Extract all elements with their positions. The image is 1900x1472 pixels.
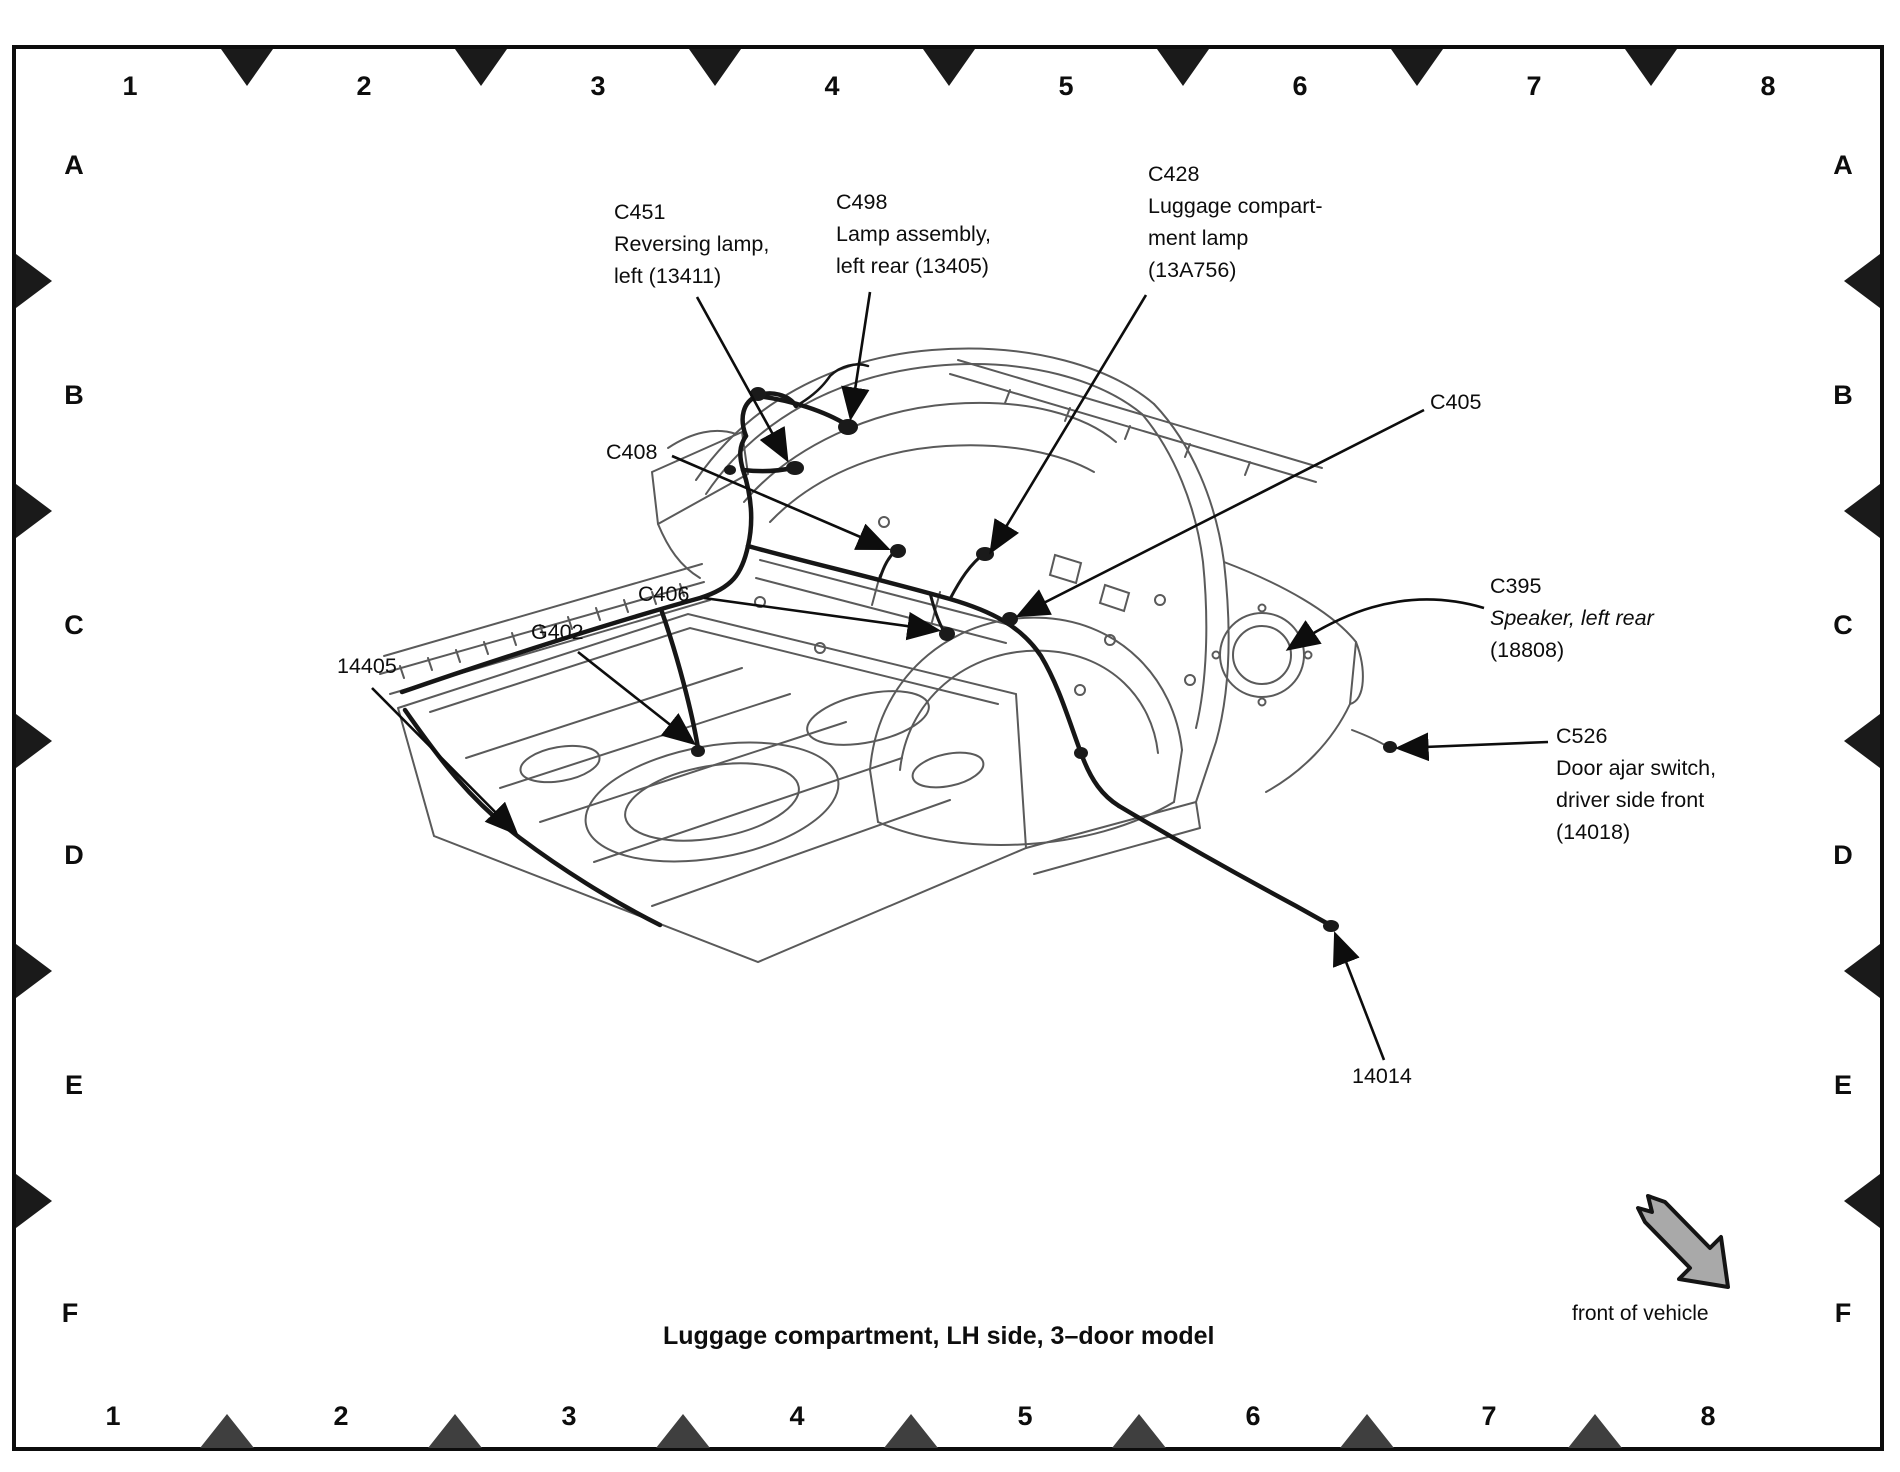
leader-c395 <box>1290 599 1484 648</box>
callout-c526: C526 Door ajar switch, driver side front… <box>1556 720 1716 848</box>
callout-c395-code: C395 <box>1490 570 1654 602</box>
grid-row-right-b: B <box>1833 382 1853 409</box>
callout-c428-code: C428 <box>1148 158 1323 190</box>
leader-c428 <box>992 295 1146 550</box>
callout-c526-desc1: Door ajar switch, <box>1556 752 1716 784</box>
leader-c406 <box>704 598 936 630</box>
callout-c406: C406 <box>638 578 689 610</box>
grid-row-left-f: F <box>62 1300 79 1327</box>
callout-c526-desc2: driver side front <box>1556 784 1716 816</box>
leader-14405 <box>372 688 515 832</box>
grid-row-left-a: A <box>64 152 84 179</box>
callout-c451-desc: Reversing lamp, <box>614 228 769 260</box>
callout-g402: G402 <box>531 616 584 648</box>
grid-col-top-7: 7 <box>1526 73 1541 100</box>
callout-c406-code: C406 <box>638 578 689 610</box>
grid-col-top-3: 3 <box>590 73 605 100</box>
manual-page: 1 2 3 4 5 6 7 8 1 2 3 4 5 6 7 8 A B C D … <box>0 0 1900 1472</box>
grid-col-bottom-1: 1 <box>105 1403 120 1430</box>
grid-col-bottom-5: 5 <box>1017 1403 1032 1430</box>
leader-c405 <box>1020 410 1424 615</box>
leader-14014 <box>1336 936 1384 1060</box>
grid-col-top-6: 6 <box>1292 73 1307 100</box>
front-of-vehicle-arrow-icon <box>1638 1196 1728 1287</box>
callout-14014-code: 14014 <box>1352 1060 1412 1092</box>
vehicle-body-drawing <box>380 349 1388 962</box>
front-of-vehicle-label: front of vehicle <box>1572 1302 1709 1326</box>
callout-c451-part: left (13411) <box>614 260 769 292</box>
grid-col-bottom-3: 3 <box>561 1403 576 1430</box>
callout-c498-desc: Lamp assembly, <box>836 218 991 250</box>
grid-col-bottom-7: 7 <box>1481 1403 1496 1430</box>
grid-row-right-d: D <box>1833 842 1853 869</box>
callout-c408: C408 <box>606 436 657 468</box>
callout-14405: 14405 <box>337 650 397 682</box>
callout-c498-code: C498 <box>836 186 991 218</box>
grid-col-bottom-2: 2 <box>333 1403 348 1430</box>
callout-c395-part: (18808) <box>1490 634 1654 666</box>
grid-row-right-f: F <box>1835 1300 1852 1327</box>
grid-row-left-d: D <box>64 842 84 869</box>
callout-c395-desc: Speaker, left rear <box>1490 602 1654 634</box>
callout-c405: C405 <box>1430 386 1481 418</box>
callout-c451: C451 Reversing lamp, left (13411) <box>614 196 769 292</box>
grid-col-top-8: 8 <box>1760 73 1775 100</box>
grid-col-bottom-4: 4 <box>789 1403 804 1430</box>
callout-g402-code: G402 <box>531 616 584 648</box>
leader-c526 <box>1400 742 1548 748</box>
grid-col-top-2: 2 <box>356 73 371 100</box>
callout-c405-code: C405 <box>1430 386 1481 418</box>
grid-col-top-4: 4 <box>824 73 839 100</box>
callout-c428-part: (13A756) <box>1148 254 1323 286</box>
grid-row-left-b: B <box>64 382 84 409</box>
grid-col-bottom-8: 8 <box>1700 1403 1715 1430</box>
callout-c395: C395 Speaker, left rear (18808) <box>1490 570 1654 666</box>
callout-14014: 14014 <box>1352 1060 1412 1092</box>
figure-caption: Luggage compartment, LH side, 3–door mod… <box>663 1322 1214 1351</box>
grid-row-right-c: C <box>1833 612 1853 639</box>
grid-row-left-e: E <box>65 1072 83 1099</box>
callout-c428-desc1: Luggage compart- <box>1148 190 1323 222</box>
grid-col-top-1: 1 <box>122 73 137 100</box>
grid-col-top-5: 5 <box>1058 73 1073 100</box>
grid-col-bottom-6: 6 <box>1245 1403 1260 1430</box>
callout-c526-code: C526 <box>1556 720 1716 752</box>
callout-c428: C428 Luggage compart- ment lamp (13A756) <box>1148 158 1323 286</box>
leader-g402 <box>578 652 692 742</box>
callout-c451-code: C451 <box>614 196 769 228</box>
grid-row-right-e: E <box>1834 1072 1852 1099</box>
callout-c428-desc2: ment lamp <box>1148 222 1323 254</box>
leader-lines <box>372 292 1548 1060</box>
callout-c498: C498 Lamp assembly, left rear (13405) <box>836 186 991 282</box>
grid-row-left-c: C <box>64 612 84 639</box>
grid-row-right-a: A <box>1833 152 1853 179</box>
callout-c526-part: (14018) <box>1556 816 1716 848</box>
callout-c408-code: C408 <box>606 436 657 468</box>
callout-14405-code: 14405 <box>337 650 397 682</box>
leader-c498 <box>851 292 870 416</box>
callout-c498-part: left rear (13405) <box>836 250 991 282</box>
